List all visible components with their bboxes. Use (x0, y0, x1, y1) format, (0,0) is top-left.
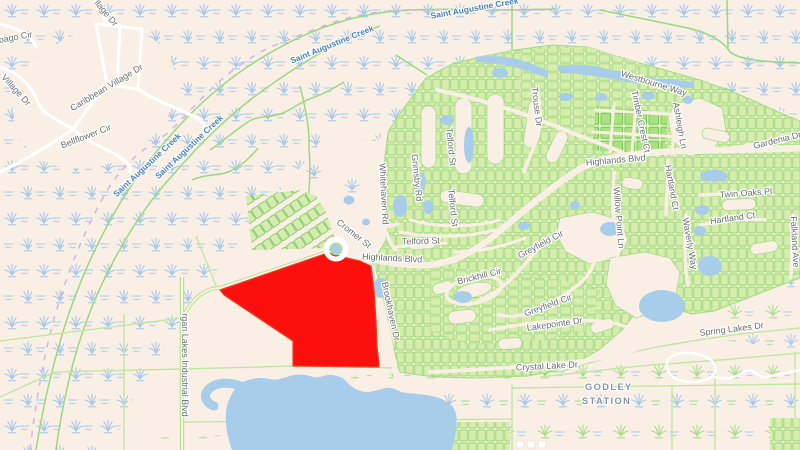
svg-text:rgan Lakes Industrial Blvd: rgan Lakes Industrial Blvd (180, 313, 190, 417)
svg-text:Telford St: Telford St (402, 235, 441, 246)
svg-text:GODLEY: GODLEY (585, 382, 633, 392)
svg-text:STATION: STATION (582, 396, 631, 406)
